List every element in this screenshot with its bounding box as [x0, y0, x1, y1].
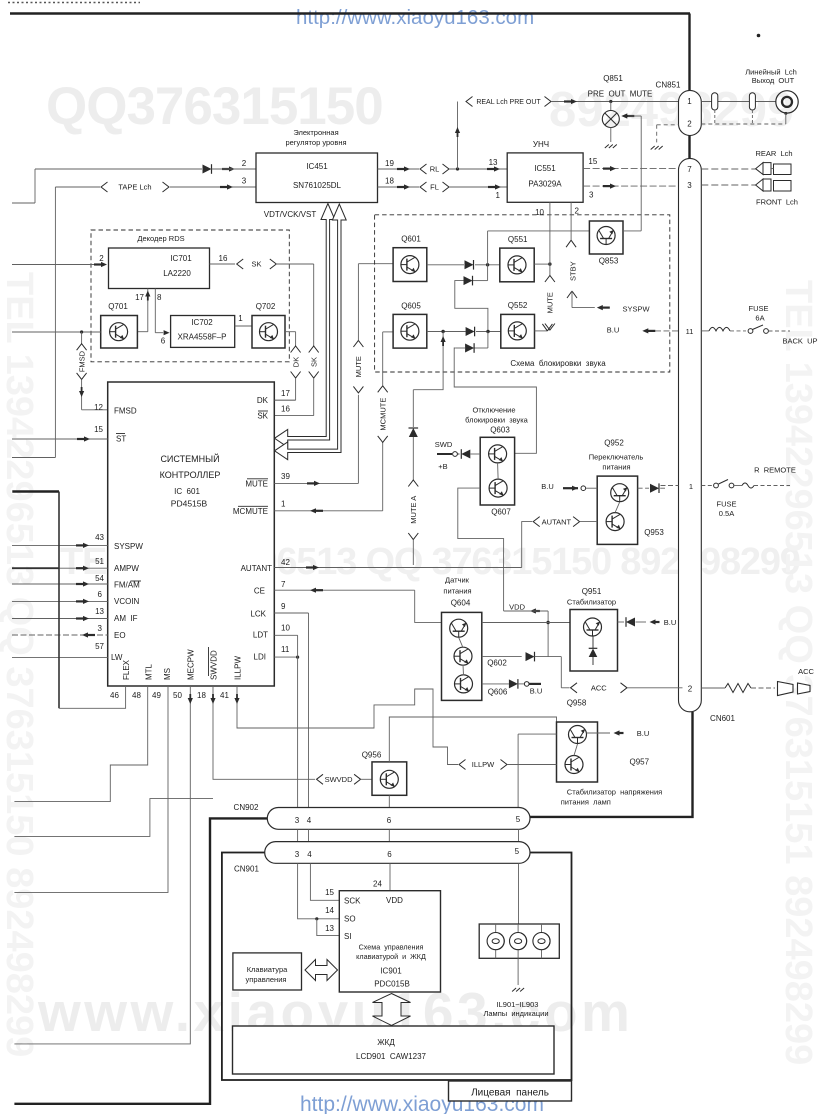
- svg-text:5: 5: [516, 815, 521, 824]
- svg-text:LCD901 CAW1237: LCD901 CAW1237: [356, 1052, 427, 1061]
- svg-text:15: 15: [588, 157, 597, 166]
- svg-text:57: 57: [95, 642, 104, 651]
- svg-text:Отключение: Отключение: [472, 406, 515, 415]
- svg-text:CN901: CN901: [234, 865, 259, 874]
- svg-text:Q606: Q606: [488, 688, 508, 697]
- svg-text:Датчик: Датчик: [445, 576, 470, 585]
- svg-text:FUSE: FUSE: [716, 500, 736, 509]
- svg-text:48: 48: [132, 691, 141, 700]
- svg-text:управления: управления: [246, 975, 287, 984]
- svg-text:1: 1: [281, 500, 286, 509]
- svg-text:TEL 13942296513 QQ 376315150 8: TEL 13942296513 QQ 376315150 892498299: [0, 272, 40, 1057]
- svg-text:VDT/VCK/VST: VDT/VCK/VST: [264, 210, 317, 219]
- svg-text:DK: DK: [257, 396, 269, 405]
- svg-text:AMPW: AMPW: [114, 564, 139, 573]
- svg-text:Q853: Q853: [599, 257, 619, 266]
- svg-text:54: 54: [95, 574, 104, 583]
- svg-text:IC551: IC551: [534, 164, 556, 173]
- svg-text:FMSD: FMSD: [77, 350, 86, 372]
- svg-text:2: 2: [575, 207, 580, 216]
- svg-text:Q604: Q604: [451, 599, 471, 608]
- svg-text:STBY: STBY: [569, 261, 578, 281]
- svg-text:3: 3: [687, 181, 692, 190]
- svg-text:Лицевая панель: Лицевая панель: [471, 1088, 549, 1099]
- svg-text:XRA4558F–P: XRA4558F–P: [178, 333, 227, 342]
- svg-text:11: 11: [281, 645, 290, 654]
- svg-text:46: 46: [110, 691, 119, 700]
- svg-text:10: 10: [281, 624, 290, 633]
- svg-text:41: 41: [220, 691, 229, 700]
- svg-text:SYSPW: SYSPW: [114, 542, 143, 551]
- svg-text:CN902: CN902: [234, 803, 259, 812]
- svg-text:SO: SO: [344, 915, 356, 924]
- svg-text:питания ламп: питания ламп: [561, 798, 611, 807]
- svg-text:4: 4: [307, 850, 312, 859]
- svg-text:Стабилизатор: Стабилизатор: [567, 598, 616, 607]
- svg-text:16: 16: [281, 405, 290, 414]
- svg-text:VDD: VDD: [509, 603, 525, 612]
- svg-text:Схема блокировки звука: Схема блокировки звука: [510, 359, 606, 368]
- svg-text:ILLPW: ILLPW: [234, 656, 243, 680]
- svg-text:CN601: CN601: [710, 714, 735, 723]
- svg-text:51: 51: [95, 557, 104, 566]
- svg-text:ACC: ACC: [798, 667, 814, 676]
- svg-text:13: 13: [325, 924, 334, 933]
- svg-text:SWVDD: SWVDD: [325, 775, 354, 784]
- svg-text:питания: питания: [443, 587, 471, 596]
- svg-text:PRE OUT MUTE: PRE OUT MUTE: [588, 90, 653, 99]
- svg-text:15: 15: [325, 888, 334, 897]
- svg-text:CN851: CN851: [656, 81, 681, 90]
- svg-text:блокировки звука: блокировки звука: [465, 416, 528, 425]
- svg-text:Q603: Q603: [490, 426, 510, 435]
- svg-text:AUTANT: AUTANT: [542, 517, 572, 526]
- svg-text:1: 1: [689, 482, 693, 491]
- svg-text:18: 18: [385, 177, 394, 186]
- svg-text:СИСТЕМНЫЙ: СИСТЕМНЫЙ: [160, 453, 219, 464]
- svg-text:клавиатурой и ЖКД: клавиатурой и ЖКД: [356, 952, 426, 961]
- svg-text:RL: RL: [430, 165, 440, 174]
- svg-text:Q953: Q953: [644, 528, 664, 537]
- svg-text:13: 13: [95, 607, 104, 616]
- svg-text:REAL Lch PRE OUT: REAL Lch PRE OUT: [476, 99, 541, 106]
- svg-text:BACK UP: BACK UP: [782, 337, 817, 346]
- svg-text:B.U: B.U: [530, 687, 543, 696]
- svg-text:LDI: LDI: [254, 653, 266, 662]
- svg-text:SWD: SWD: [435, 440, 453, 449]
- svg-text:24: 24: [373, 880, 382, 889]
- svg-text:B.U: B.U: [541, 482, 554, 491]
- svg-text:SK: SK: [309, 357, 318, 367]
- svg-text:CE: CE: [254, 586, 265, 595]
- svg-text:6A: 6A: [755, 314, 764, 323]
- svg-text:LCK: LCK: [250, 609, 266, 618]
- svg-text:http://www.xiaoyu163.com: http://www.xiaoyu163.com: [296, 6, 534, 29]
- svg-text:2: 2: [688, 685, 693, 694]
- svg-text:Лампы индикации: Лампы индикации: [483, 1009, 548, 1018]
- svg-text:17: 17: [281, 389, 290, 398]
- svg-text:19: 19: [385, 159, 394, 168]
- svg-text:B.U: B.U: [637, 729, 650, 738]
- svg-text:MS: MS: [163, 668, 172, 680]
- svg-text:Схема управления: Схема управления: [359, 943, 424, 952]
- svg-text:PDC015B: PDC015B: [374, 980, 410, 989]
- svg-text:892498299: 892498299: [549, 83, 794, 137]
- svg-text:49: 49: [152, 691, 161, 700]
- svg-text:FM/AM: FM/AM: [114, 581, 140, 590]
- svg-text:18: 18: [197, 691, 206, 700]
- svg-text:TAPE Lch: TAPE Lch: [118, 183, 151, 192]
- svg-text:0.5A: 0.5A: [719, 509, 734, 518]
- svg-text:ST: ST: [116, 435, 126, 444]
- svg-text:SYSPW: SYSPW: [622, 305, 650, 314]
- svg-text:FL: FL: [430, 183, 439, 192]
- svg-text:SWVDD: SWVDD: [210, 650, 219, 680]
- svg-text:Выход OUT: Выход OUT: [752, 76, 795, 85]
- svg-text:DK: DK: [291, 357, 300, 367]
- svg-text:13: 13: [489, 158, 498, 167]
- svg-text:Q956: Q956: [362, 751, 382, 760]
- svg-text:8: 8: [157, 293, 162, 302]
- svg-text:питания: питания: [602, 463, 630, 472]
- svg-text:Q602: Q602: [487, 659, 507, 668]
- svg-text:MECPW: MECPW: [187, 649, 196, 680]
- svg-text:REAR Lch: REAR Lch: [755, 149, 792, 158]
- svg-text:Q551: Q551: [508, 235, 528, 244]
- svg-text:VDD: VDD: [386, 896, 403, 905]
- svg-text:LA2220: LA2220: [163, 269, 191, 278]
- svg-text:SN761025DL: SN761025DL: [293, 181, 342, 190]
- svg-text:6: 6: [98, 590, 103, 599]
- svg-text:SK: SK: [257, 412, 268, 421]
- svg-text:FMSD: FMSD: [114, 407, 137, 416]
- svg-text:50: 50: [173, 691, 182, 700]
- svg-text:Q851: Q851: [603, 74, 623, 83]
- svg-text:39: 39: [281, 472, 290, 481]
- svg-text:LDT: LDT: [253, 630, 268, 639]
- svg-text:SCK: SCK: [344, 897, 361, 906]
- svg-text:Клавиатура: Клавиатура: [247, 965, 288, 974]
- svg-text:MUTE: MUTE: [546, 292, 555, 313]
- svg-text:Q601: Q601: [401, 235, 421, 244]
- svg-text:AUTANT: AUTANT: [241, 564, 273, 573]
- svg-text:УНЧ: УНЧ: [533, 140, 549, 149]
- svg-text:MCMUTE: MCMUTE: [233, 507, 268, 516]
- svg-text:+B: +B: [438, 462, 447, 471]
- svg-text:16: 16: [219, 254, 228, 263]
- svg-text:ЖКД: ЖКД: [377, 1038, 395, 1047]
- svg-text:15: 15: [94, 425, 103, 434]
- svg-text:14: 14: [325, 906, 334, 915]
- svg-text:IC702: IC702: [191, 318, 213, 327]
- svg-text:43: 43: [95, 533, 104, 542]
- svg-text:Переключатель: Переключатель: [589, 453, 644, 462]
- svg-text:PD4515B: PD4515B: [171, 499, 208, 509]
- svg-text:11: 11: [686, 327, 694, 336]
- svg-text:PA3029A: PA3029A: [528, 180, 562, 189]
- svg-text:SI: SI: [344, 932, 352, 941]
- svg-text:6: 6: [387, 850, 392, 859]
- svg-text:Q702: Q702: [256, 302, 276, 311]
- svg-text:Q952: Q952: [604, 439, 624, 448]
- svg-text:Q957: Q957: [630, 758, 650, 767]
- svg-text:IC451: IC451: [306, 162, 328, 171]
- svg-text:9: 9: [281, 602, 286, 611]
- svg-text:Q951: Q951: [582, 587, 602, 596]
- svg-text:AM IF: AM IF: [114, 614, 138, 623]
- svg-text:MUTE A: MUTE A: [409, 496, 418, 524]
- svg-text:регулятор уровня: регулятор уровня: [285, 138, 346, 147]
- svg-text:6: 6: [161, 337, 166, 346]
- svg-text:Декодер RDS: Декодер RDS: [137, 234, 184, 243]
- svg-text:7: 7: [281, 580, 286, 589]
- svg-text:1: 1: [496, 191, 501, 200]
- svg-text:3: 3: [295, 816, 300, 825]
- svg-text:Q552: Q552: [508, 301, 528, 310]
- svg-text:3: 3: [589, 191, 594, 200]
- svg-text:IC901: IC901: [380, 967, 402, 976]
- svg-text:B.U: B.U: [607, 326, 620, 335]
- svg-text:MUTE: MUTE: [354, 356, 363, 377]
- svg-text:B.U: B.U: [664, 618, 677, 627]
- svg-text:2: 2: [687, 120, 692, 129]
- svg-text:3: 3: [242, 177, 247, 186]
- svg-text:3: 3: [295, 850, 300, 859]
- svg-text:EO: EO: [114, 631, 126, 640]
- svg-text:SK: SK: [251, 260, 261, 269]
- svg-text:КОНТРОЛЛЕР: КОНТРОЛЛЕР: [160, 470, 221, 480]
- svg-text:Q607: Q607: [491, 508, 511, 517]
- svg-text:MUTE: MUTE: [245, 480, 268, 489]
- svg-text:ILLPW: ILLPW: [472, 760, 495, 769]
- svg-text:ACC: ACC: [591, 684, 607, 693]
- svg-text:12: 12: [94, 403, 103, 412]
- svg-text:17: 17: [135, 293, 144, 302]
- svg-text:Стабилизатор напряжения: Стабилизатор напряжения: [567, 788, 662, 797]
- svg-text:IL901~IL903: IL901~IL903: [497, 1000, 539, 1009]
- svg-text:2: 2: [242, 159, 247, 168]
- svg-text:1: 1: [687, 97, 692, 106]
- svg-text:6: 6: [387, 816, 392, 825]
- svg-text:FLEX: FLEX: [122, 659, 131, 680]
- svg-text:2: 2: [99, 254, 104, 263]
- svg-text:42: 42: [281, 558, 290, 567]
- svg-text:IC 601: IC 601: [174, 487, 200, 496]
- svg-text:5: 5: [515, 847, 520, 856]
- svg-text:MTL: MTL: [145, 663, 154, 680]
- svg-text:MCMUTE: MCMUTE: [378, 398, 387, 431]
- svg-text:1: 1: [238, 314, 243, 323]
- svg-text:VCOIN: VCOIN: [114, 597, 140, 606]
- svg-text:Q701: Q701: [108, 302, 128, 311]
- svg-text:FUSE: FUSE: [748, 304, 768, 313]
- svg-text:Q958: Q958: [567, 699, 587, 708]
- svg-text:R REMOTE: R REMOTE: [754, 466, 796, 475]
- svg-text:4: 4: [307, 816, 312, 825]
- svg-text:7: 7: [687, 165, 692, 174]
- svg-text:3: 3: [98, 624, 103, 633]
- svg-text:FRONT Lch: FRONT Lch: [756, 198, 798, 207]
- svg-text:IC701: IC701: [170, 254, 192, 263]
- svg-text:10: 10: [535, 208, 544, 217]
- svg-text:Q605: Q605: [401, 301, 421, 310]
- svg-text:Электронная: Электронная: [293, 128, 338, 137]
